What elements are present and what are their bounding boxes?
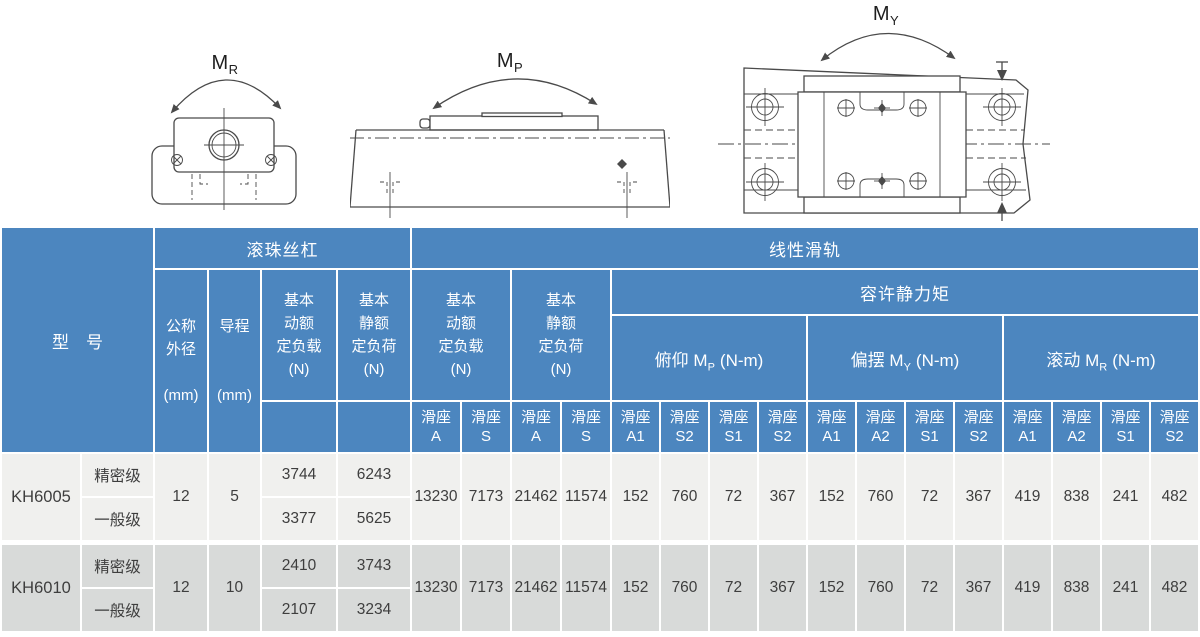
pitch-cell: 152 [612, 454, 659, 540]
roll-cell: 419 [1004, 454, 1051, 540]
slide-top-step [482, 113, 562, 117]
lead-header: 导程 (mm) [209, 270, 260, 452]
bs-dyn-cell: 2107 [262, 589, 336, 631]
front-view-diagram-mr [130, 42, 350, 224]
roll-cell: 838 [1053, 454, 1100, 540]
yaw-cell: 760 [857, 545, 904, 631]
pitch-cell: 152 [612, 545, 659, 631]
yaw-cell: 367 [955, 545, 1002, 631]
yaw-moment-header: 偏摆 MY(N-m) [808, 316, 1002, 400]
yaw-cell: 760 [857, 454, 904, 540]
slide-block [430, 116, 598, 130]
empty-header-cell [262, 402, 336, 452]
side-view-diagram-mp [350, 42, 670, 222]
subcol-header-yaw-1: 滑座A1 [808, 402, 855, 452]
bs-dyn-cell: 2410 [262, 545, 336, 587]
mp-diagram-svg [350, 42, 670, 222]
subcol-header-roll-4: 滑座S2 [1151, 402, 1198, 452]
yaw-cell: 72 [906, 454, 953, 540]
lg-stat-s-cell: 11574 [562, 454, 610, 540]
grade-cell: 一般级 [82, 498, 153, 540]
grade-cell: 精密级 [82, 454, 153, 496]
yaw-cell: 367 [955, 454, 1002, 540]
slide-flange-top [804, 76, 960, 92]
roll-cell: 419 [1004, 545, 1051, 631]
bs-stat-cell: 3234 [338, 589, 410, 631]
my-diagram-svg [718, 2, 1050, 224]
roll-cell: 241 [1102, 454, 1149, 540]
subcol-header-pitch-1: 滑座A1 [612, 402, 659, 452]
ball-screw-group-header: 滚珠丝杠 [155, 228, 410, 268]
subcol-header-yaw-4: 滑座S2 [955, 402, 1002, 452]
yaw-cell: 152 [808, 454, 855, 540]
table-row-kh6010-precision: KH6010 精密级 12 10 2410 3743 13230 7173 21… [2, 545, 1198, 587]
subcol-header-roll-2: 滑座A2 [1053, 402, 1100, 452]
subcol-header-roll-3: 滑座S1 [1102, 402, 1149, 452]
subcol-header-lg-dyn-a: 滑座A [412, 402, 460, 452]
section-marks [380, 172, 637, 218]
lead-cell: 10 [209, 545, 260, 631]
grade-cell: 精密级 [82, 545, 153, 587]
subcol-header-yaw-3: 滑座S1 [906, 402, 953, 452]
lg-dyn-a-cell: 13230 [412, 454, 460, 540]
slide-end-cap [420, 119, 430, 128]
roll-cell: 838 [1053, 545, 1100, 631]
bs-stat-cell: 5625 [338, 498, 410, 540]
bs-stat-cell: 6243 [338, 454, 410, 496]
yaw-cell: 152 [808, 545, 855, 631]
pitch-cell: 72 [710, 545, 757, 631]
bs-dyn-cell: 3744 [262, 454, 336, 496]
mr-diagram-svg [130, 42, 350, 224]
linear-guide-group-header: 线性滑轨 [412, 228, 1198, 268]
model-cell: KH6005 [2, 454, 80, 540]
table-row-kh6005-precision: KH6005 精密级 12 5 3744 6243 13230 7173 214… [2, 454, 1198, 496]
subcol-header-lg-stat-a: 滑座A [512, 402, 560, 452]
bs-static-load-header: 基本 静额 定负荷 (N) [338, 270, 410, 400]
mp-arc-arrow [434, 79, 596, 108]
subcol-header-lg-dyn-s: 滑座S [462, 402, 510, 452]
pitch-cell: 367 [759, 454, 806, 540]
model-column-header: 型 号 [2, 228, 153, 452]
pitch-cell: 367 [759, 545, 806, 631]
nominal-od-header: 公称 外径 (mm) [155, 270, 207, 452]
lg-dyn-s-cell: 7173 [462, 454, 510, 540]
roll-cell: 241 [1102, 545, 1149, 631]
diamond-marker [617, 159, 627, 169]
grade-cell: 一般级 [82, 589, 153, 631]
lg-stat-s-cell: 11574 [562, 545, 610, 631]
lg-dynamic-load-header: 基本 动额 定负载 (N) [412, 270, 510, 400]
mr-arc-arrow [172, 80, 280, 112]
subcol-header-pitch-4: 滑座S2 [759, 402, 806, 452]
yaw-cell: 72 [906, 545, 953, 631]
static-moment-group-header: 容许静力矩 [612, 270, 1198, 314]
lg-stat-a-cell: 21462 [512, 454, 560, 540]
my-arc-arrow [822, 33, 954, 60]
subcol-header-pitch-3: 滑座S1 [710, 402, 757, 452]
bs-stat-cell: 3743 [338, 545, 410, 587]
spec-table: 型 号 滚珠丝杠 线性滑轨 公称 外径 (mm) 导程 (mm) 基本 动额 定… [0, 226, 1200, 633]
pitch-cell: 760 [661, 545, 708, 631]
subcol-header-yaw-2: 滑座A2 [857, 402, 904, 452]
spec-sheet-page: { "colors": { "header_blue": "#4c86bf", … [0, 0, 1200, 637]
lead-cell: 5 [209, 454, 260, 540]
model-cell: KH6010 [2, 545, 80, 631]
slide-flange-bottom [804, 197, 960, 213]
roll-cell: 482 [1151, 454, 1198, 540]
block-gap [2, 542, 1198, 543]
od-cell: 12 [155, 454, 207, 540]
pitch-cell: 72 [710, 454, 757, 540]
empty-header-cell [338, 402, 410, 452]
bs-dyn-cell: 3377 [262, 498, 336, 540]
subcol-header-roll-1: 滑座A1 [1004, 402, 1051, 452]
lg-dyn-s-cell: 7173 [462, 545, 510, 631]
top-view-diagram-my [718, 2, 1050, 224]
roll-cell: 482 [1151, 545, 1198, 631]
subcol-header-pitch-2: 滑座S2 [661, 402, 708, 452]
lg-stat-a-cell: 21462 [512, 545, 560, 631]
roll-moment-header: 滚动 MR(N-m) [1004, 316, 1198, 400]
pitch-moment-header: 俯仰 MP(N-m) [612, 316, 806, 400]
bs-dynamic-load-header: 基本 动额 定负载 (N) [262, 270, 336, 400]
lg-dyn-a-cell: 13230 [412, 545, 460, 631]
od-cell: 12 [155, 545, 207, 631]
lg-static-load-header: 基本 静额 定负荷 (N) [512, 270, 610, 400]
subcol-header-lg-stat-s: 滑座S [562, 402, 610, 452]
pitch-cell: 760 [661, 454, 708, 540]
